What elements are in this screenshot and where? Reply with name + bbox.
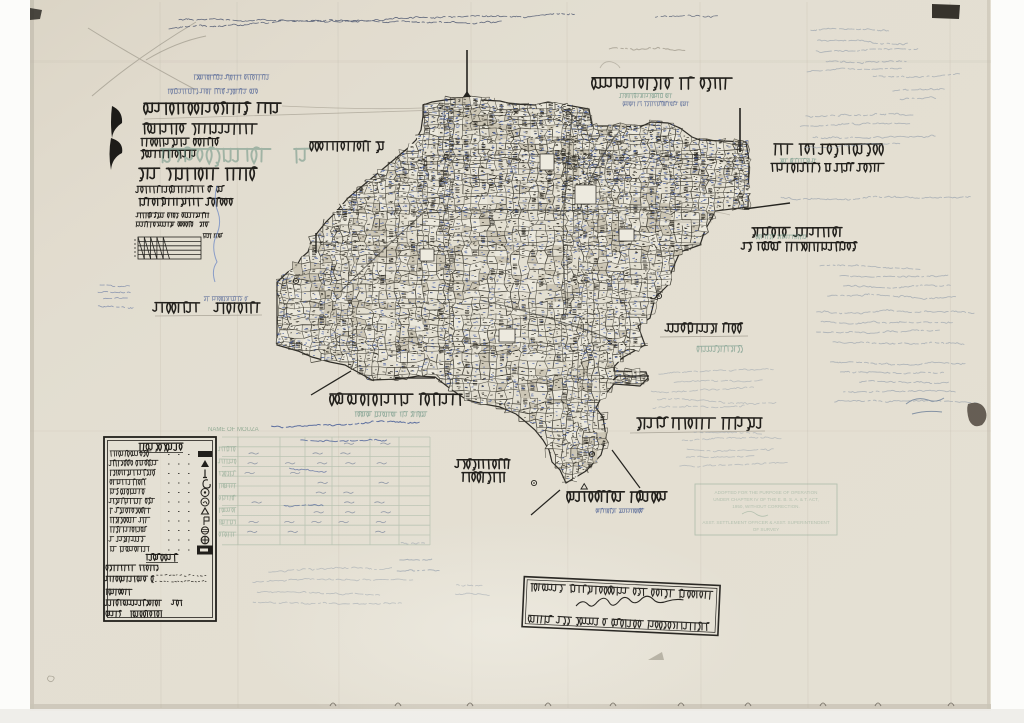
svg-text:1950, WITHOUT CORRECTION.: 1950, WITHOUT CORRECTION. — [732, 504, 800, 509]
svg-text:OF SURVEY: OF SURVEY — [753, 527, 779, 532]
svg-text:ASST. SETTLEMENT OFFICER & ASS: ASST. SETTLEMENT OFFICER & ASST. SUPERIN… — [702, 520, 829, 525]
svg-text:UNDER CHAPTER IV OF THE E. B.: UNDER CHAPTER IV OF THE E. B. S. A. & T.… — [713, 497, 819, 502]
svg-text:NAME OF MOUZA: NAME OF MOUZA — [208, 427, 259, 433]
svg-text:ADOPTED FOR THE PURPOSE OF OPE: ADOPTED FOR THE PURPOSE OF OPERATION — [715, 490, 818, 495]
